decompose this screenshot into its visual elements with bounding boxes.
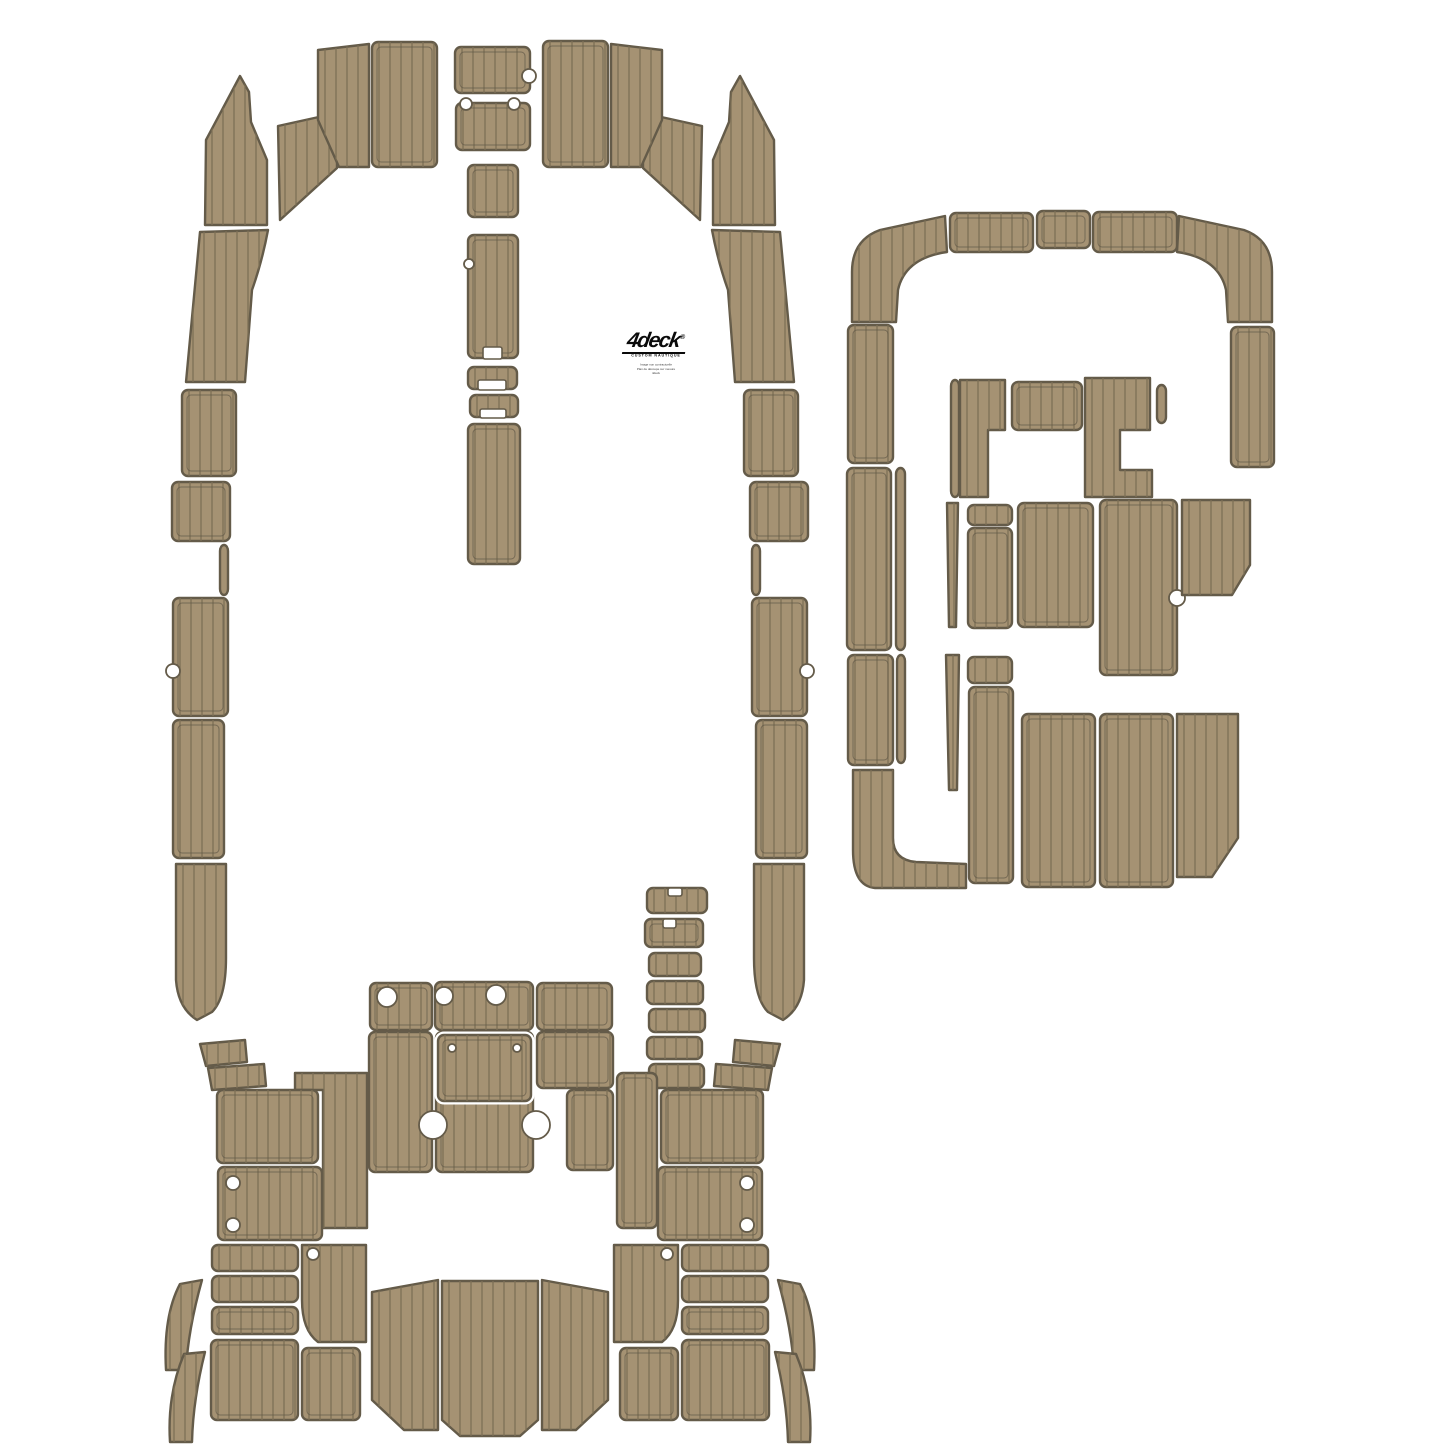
deck-pad-piece — [1022, 713, 1095, 888]
deck-pad-piece — [302, 1244, 366, 1343]
brand-logo: 4deck® CUSTOM NAUTIQUE Image non contrac… — [597, 330, 715, 389]
deck-pad-piece — [176, 863, 226, 1021]
deck-pad-piece — [211, 1339, 298, 1421]
deck-pad-piece — [455, 46, 536, 94]
deck-pad-piece — [950, 212, 1033, 253]
deck-pad-piece — [852, 215, 947, 323]
deck-pad-piece — [896, 468, 905, 650]
deck-pad-piece — [682, 1244, 768, 1272]
brand-fineprint: Image non contractuelle Plan de découpe … — [627, 363, 686, 376]
deck-pad-piece — [750, 481, 808, 542]
deck-pad-piece — [1177, 215, 1272, 323]
fineprint-line: 4deck — [627, 372, 686, 376]
deck-pad-piece — [218, 1166, 322, 1241]
deck-pad-piece — [1182, 499, 1250, 596]
deck-pad-piece — [658, 1166, 762, 1241]
deck-pad-piece — [848, 324, 893, 464]
secondary-deck-group — [847, 210, 1274, 889]
deck-pad-piece — [649, 952, 701, 977]
deck-pad-piece — [1012, 381, 1082, 431]
deck-pad-piece — [682, 1339, 769, 1421]
deck-pad-piece — [456, 98, 530, 151]
deck-pad-piece — [712, 229, 794, 383]
deck-pad-piece — [438, 1034, 531, 1102]
brand-wordmark: 4deck® — [622, 330, 689, 354]
main-deck-group — [166, 40, 815, 1445]
deck-pad-piece — [617, 1072, 657, 1229]
deck-pad-piece — [468, 164, 518, 218]
deck-pad-piece — [182, 389, 236, 477]
deck-pad-piece — [208, 1063, 266, 1091]
deck-pad-piece — [847, 467, 891, 651]
deck-pad-piece — [756, 719, 807, 859]
deck-pad-piece — [1037, 210, 1090, 249]
deck-pad-piece — [733, 1039, 780, 1067]
deck-pad-piece — [649, 1008, 705, 1033]
deck-pad-piece — [752, 597, 814, 717]
deck-pad-piece — [464, 234, 518, 359]
deck-pad-piece — [186, 229, 268, 383]
deck-pad-piece — [212, 1306, 298, 1335]
deck-pad-piece — [1018, 502, 1093, 628]
deck-pad-piece — [620, 1347, 678, 1421]
deck-pad-piece — [752, 545, 760, 595]
deck-pad-piece — [212, 1244, 298, 1272]
deck-pad-piece — [166, 597, 228, 717]
deck-pad-piece — [372, 1279, 438, 1431]
deck-pad-piece — [537, 1031, 613, 1089]
registered-mark: ® — [680, 334, 686, 341]
deck-pad-piece — [220, 545, 228, 595]
brand-tagline: CUSTOM NAUTIQUE — [619, 354, 692, 358]
deck-pad-piece — [205, 75, 267, 226]
deck-pad-piece — [470, 394, 518, 418]
deck-pad-piece — [370, 982, 432, 1031]
deck-pad-piece — [951, 380, 959, 497]
deck-pad-piece — [537, 982, 612, 1031]
deck-pad-piece — [713, 75, 775, 226]
deck-pad-piece — [647, 980, 703, 1005]
deck-pad-piece — [661, 1089, 763, 1164]
deck-pad-piece — [173, 719, 224, 859]
deck-pad-piece — [567, 1089, 613, 1171]
deck-pad-piece — [1177, 713, 1238, 878]
deck-pad-piece — [647, 1036, 702, 1060]
deck-pad-piece — [542, 1279, 608, 1431]
deck-pad-piece — [468, 423, 520, 565]
deck-pad-piece — [217, 1089, 318, 1164]
deck-pad-piece — [960, 379, 1005, 498]
deck-pad-piece — [968, 527, 1012, 629]
deck-pad-piece — [212, 1275, 298, 1303]
deck-pad-piece — [1157, 385, 1166, 423]
deck-plan-canvas: 4deck® CUSTOM NAUTIQUE Image non contrac… — [0, 0, 1445, 1445]
deck-pad-piece — [372, 41, 437, 168]
deck-pad-piece — [947, 502, 958, 628]
deck-pad-piece — [968, 656, 1012, 684]
deck-pad-piece — [682, 1306, 768, 1335]
deck-pad-piece — [543, 40, 608, 168]
deck-pad-piece — [714, 1063, 772, 1091]
brand-name: 4deck — [626, 329, 682, 352]
deck-pad-piece — [848, 654, 893, 766]
deck-pad-piece — [369, 1031, 432, 1173]
deck-pad-piece — [1100, 499, 1185, 676]
deck-pad-piece — [647, 887, 707, 914]
deck-pad-piece — [1231, 326, 1274, 468]
deck-pad-piece — [468, 366, 517, 390]
deck-pad-piece — [969, 686, 1013, 884]
deck-pad-piece — [682, 1275, 768, 1303]
deck-pad-piece — [442, 1280, 538, 1437]
deck-pad-piece — [897, 655, 905, 763]
deck-pad-piece — [645, 918, 703, 948]
deck-pad-piece — [302, 1347, 360, 1421]
deck-pad-piece — [744, 389, 798, 477]
deck-layout-svg — [0, 0, 1445, 1445]
deck-pad-piece — [1093, 211, 1177, 253]
deck-pad-piece — [614, 1244, 678, 1343]
deck-pad-piece — [1085, 377, 1152, 498]
deck-pad-piece — [754, 863, 804, 1021]
deck-pad-piece — [968, 504, 1012, 526]
deck-pad-piece — [1100, 713, 1173, 888]
deck-pad-piece — [946, 654, 959, 791]
deck-pad-piece — [200, 1039, 247, 1067]
deck-pad-piece — [435, 981, 533, 1031]
deck-pad-piece — [172, 481, 230, 542]
